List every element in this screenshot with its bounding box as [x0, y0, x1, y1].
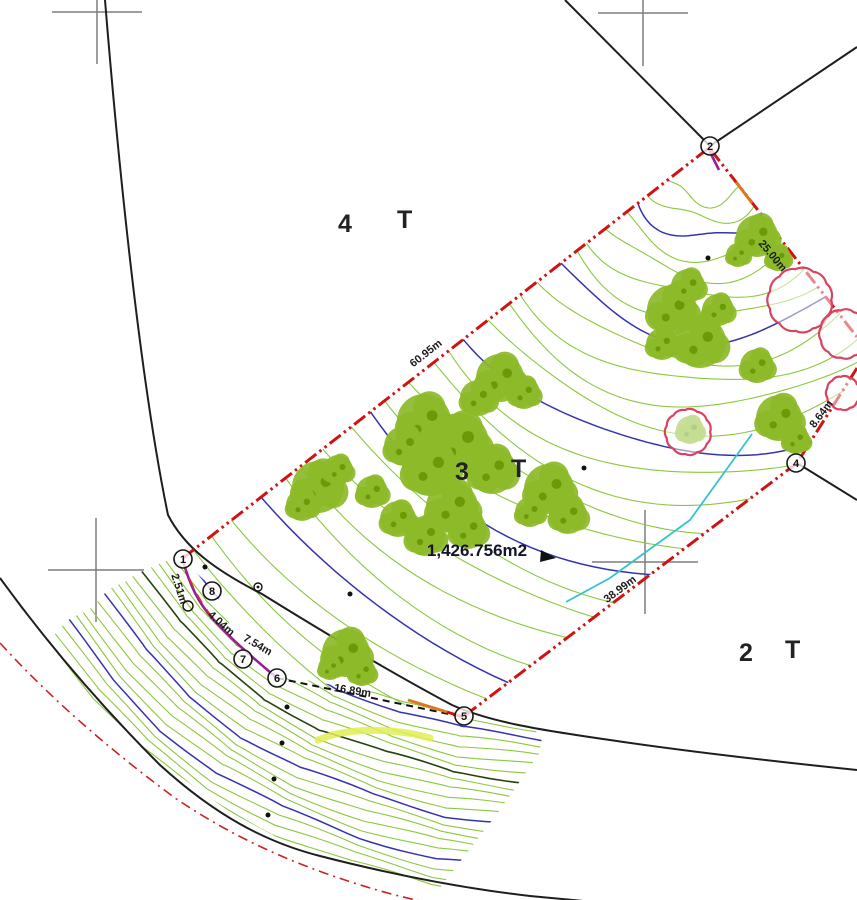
marker-number: 1 — [180, 554, 186, 566]
tree-speckle — [471, 401, 477, 407]
tree-speckle — [711, 312, 716, 317]
survey-plan-canvas: 4 T 3 T 2 T 1,426.756m2 60.95m 25.00m 8.… — [0, 0, 857, 900]
tree-speckle — [748, 239, 755, 246]
tree-speckle — [759, 359, 766, 366]
edge-2-3-orange-segment — [736, 182, 752, 203]
tree-speckle — [406, 438, 414, 446]
tree-symbol — [739, 347, 777, 383]
tree-speckle — [560, 518, 566, 524]
tree-speckle — [552, 479, 562, 489]
tree-speckle — [790, 442, 794, 446]
marker-number: 6 — [274, 673, 280, 685]
survey-point-dot — [257, 586, 260, 589]
marker-number: 4 — [793, 458, 800, 470]
tree-speckle — [739, 250, 744, 255]
tree-speckle — [703, 332, 713, 342]
tree-speckle — [462, 431, 474, 443]
tree-speckle — [433, 457, 444, 468]
tree-speckle — [391, 522, 397, 528]
grid-cross-icon — [598, 0, 688, 66]
marker-number: 7 — [240, 654, 246, 666]
boundary-line-north-east — [710, 47, 857, 146]
dimension-label-4-5: 38.99m — [602, 573, 639, 605]
parcel-edge-orange-segment — [408, 700, 447, 712]
tree-speckle — [494, 460, 504, 470]
lot-number-3: 3 — [455, 458, 469, 486]
outlined-tree-symbol — [665, 409, 711, 455]
dimension-label-7-8: 4.04m — [205, 609, 236, 639]
lot-type-2: T — [785, 636, 800, 664]
tree-symbol — [355, 474, 391, 508]
parcel-contour-field — [151, 177, 857, 809]
survey-point-dot — [285, 705, 290, 710]
survey-point-dot — [266, 813, 271, 818]
contour-line — [83, 613, 526, 855]
tree-speckle — [482, 473, 490, 481]
boundary-line-south-east — [797, 463, 857, 500]
tree-speckle — [356, 674, 360, 678]
survey-point-dot — [706, 256, 711, 261]
tree-speckle — [441, 511, 449, 519]
tree-speckle — [374, 486, 380, 492]
corner-marker-4: 4 — [787, 454, 805, 472]
tree-speckle — [733, 257, 737, 261]
grid-cross-icon — [52, 0, 142, 64]
lot-number-2: 2 — [739, 639, 753, 667]
tree-symbol — [322, 454, 356, 486]
contour-line — [76, 616, 525, 862]
tree-speckle — [460, 533, 466, 539]
tree-speckle — [400, 512, 407, 519]
survey-point-dot — [272, 777, 277, 782]
parcel-edge-4-5 — [463, 463, 797, 717]
tree-speckle — [325, 670, 329, 674]
lot-number-4: 4 — [338, 210, 352, 238]
contour-line — [126, 582, 534, 802]
grid-cross-icon — [48, 518, 144, 622]
survey-point-dot — [280, 741, 285, 746]
tree-speckle — [781, 409, 790, 418]
hillside-contour-field — [48, 504, 549, 897]
tree-speckle — [526, 387, 532, 393]
tree-speckle — [455, 497, 465, 507]
tree-speckle — [332, 472, 337, 477]
tree-speckle — [720, 304, 726, 310]
tree-speckle — [655, 346, 660, 351]
area-label: 1,426.756m2 — [427, 541, 527, 560]
contour-line — [661, 177, 743, 208]
survey-point-dot — [203, 565, 208, 570]
contour-line — [55, 634, 522, 886]
tree-speckle — [532, 506, 538, 512]
tree-symbol — [670, 267, 708, 303]
corner-marker-7: 7 — [234, 650, 252, 668]
tree-speckle — [470, 522, 478, 530]
contour-line — [217, 512, 548, 687]
tree-speckle — [797, 434, 803, 440]
dimension-label-1-2: 60.95m — [408, 337, 445, 370]
tree-speckle — [517, 395, 522, 400]
tree-speckle — [417, 539, 423, 545]
tree-speckle — [331, 663, 336, 668]
tree-speckle — [419, 472, 428, 481]
tree-speckle — [348, 643, 358, 653]
tree-speckle — [662, 314, 670, 322]
lot-type-4: T — [397, 206, 412, 234]
corner-marker-5: 5 — [455, 707, 473, 725]
survey-point-dot — [348, 592, 353, 597]
tree-speckle — [689, 346, 697, 354]
tree-speckle — [681, 288, 686, 293]
tree-speckle — [502, 368, 512, 378]
marker-number: 2 — [707, 141, 713, 153]
tree-speckle — [770, 421, 777, 428]
grid-crosses — [48, 0, 698, 622]
survey-point-dot — [582, 466, 587, 471]
tree-speckle — [304, 499, 310, 505]
tree-speckle — [690, 279, 697, 286]
tree-speckle — [524, 514, 529, 519]
tree-speckle — [427, 528, 435, 536]
tree-speckle — [759, 228, 767, 236]
tree-speckle — [570, 507, 578, 515]
marker-number: 5 — [461, 711, 467, 723]
tree-speckle — [664, 338, 670, 344]
tree-speckle — [750, 368, 755, 373]
tree-speckle — [363, 666, 369, 672]
corner-marker-1: 1 — [174, 550, 192, 568]
parcel-edge-6-to-1-curve — [183, 561, 277, 678]
tree-speckle — [340, 464, 346, 470]
highlight-band — [318, 730, 430, 740]
corner-marker-8: 8 — [203, 582, 221, 600]
corner-marker-6: 6 — [268, 669, 286, 687]
corner-marker-2: 2 — [701, 137, 719, 155]
marker-number: 8 — [209, 586, 215, 598]
site-plan-drawing: 4 T 3 T 2 T 1,426.756m2 60.95m 25.00m 8.… — [0, 0, 857, 900]
lot-type-3: T — [511, 455, 526, 483]
boundary-line-north-west — [565, 0, 710, 146]
tree-speckle — [295, 507, 300, 512]
tree-speckle — [396, 449, 402, 455]
tree-speckle — [480, 391, 487, 398]
tree-speckle — [427, 410, 438, 421]
tree-speckle — [365, 494, 370, 499]
tree-symbol — [379, 499, 420, 537]
